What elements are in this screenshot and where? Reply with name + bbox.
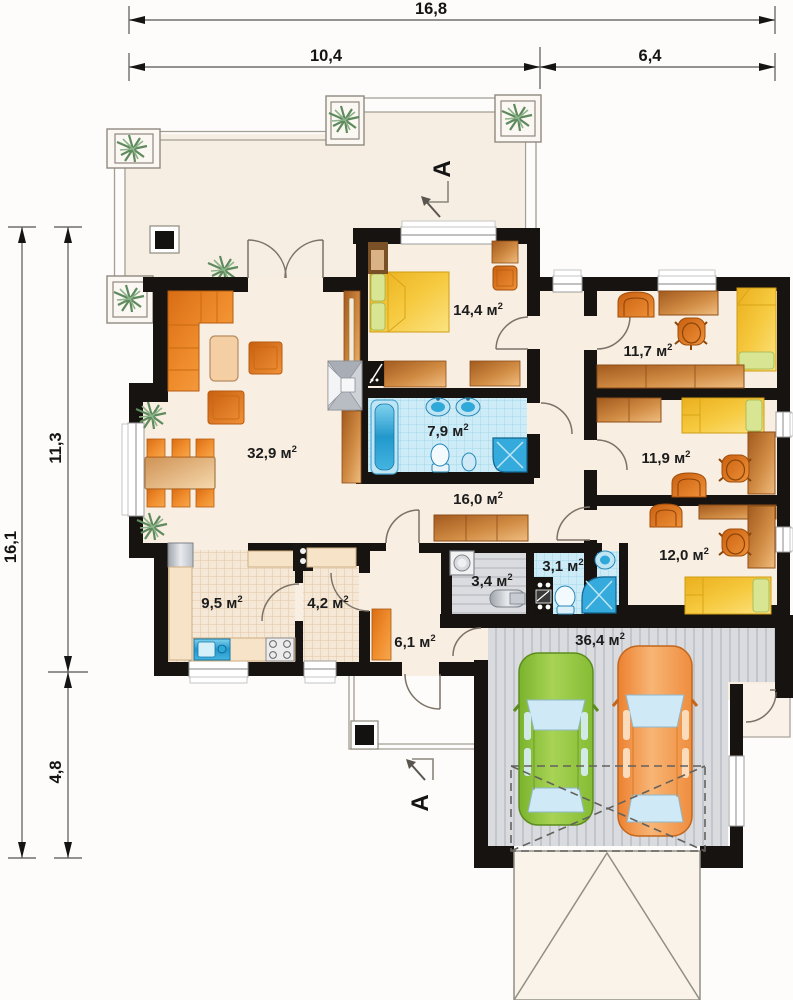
svg-text:16,8: 16,8: [415, 0, 447, 18]
svg-text:4,2 м2: 4,2 м2: [307, 594, 348, 612]
svg-text:9,5 м2: 9,5 м2: [201, 594, 242, 612]
svg-text:7,9 м2: 7,9 м2: [427, 422, 468, 440]
svg-text:11,3: 11,3: [47, 432, 65, 463]
svg-text:4,8: 4,8: [47, 761, 65, 784]
svg-text:12,0 м2: 12,0 м2: [659, 546, 709, 564]
svg-text:36,4 м2: 36,4 м2: [575, 631, 625, 649]
svg-text:32,9 м2: 32,9 м2: [247, 444, 297, 462]
svg-text:6,1 м2: 6,1 м2: [394, 633, 435, 651]
svg-text:16,1: 16,1: [2, 531, 20, 563]
svg-text:3,1 м2: 3,1 м2: [542, 557, 583, 575]
svg-text:A: A: [407, 794, 434, 811]
svg-text:14,4 м2: 14,4 м2: [453, 301, 503, 319]
svg-text:10,4: 10,4: [310, 47, 343, 65]
svg-text:3,4 м2: 3,4 м2: [471, 572, 512, 590]
svg-text:16,0 м2: 16,0 м2: [453, 490, 503, 508]
svg-text:A: A: [429, 160, 456, 177]
svg-text:6,4: 6,4: [639, 47, 663, 65]
svg-text:11,7 м2: 11,7 м2: [624, 342, 673, 360]
svg-text:11,9 м2: 11,9 м2: [642, 449, 691, 467]
